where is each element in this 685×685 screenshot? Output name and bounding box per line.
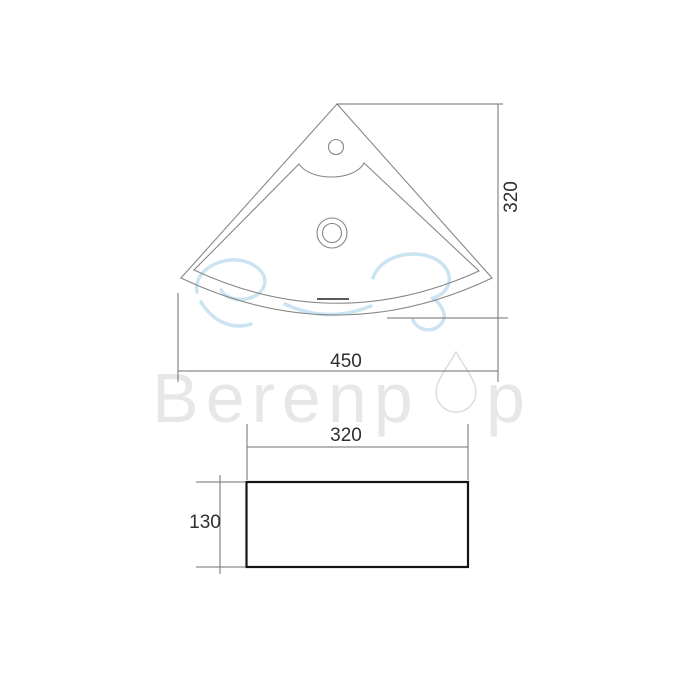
drain-hole-outer — [317, 218, 347, 248]
dimension-drawing: 320 450 320 130 — [0, 0, 685, 685]
drain-hole-inner — [323, 224, 342, 243]
side-view-body — [247, 482, 469, 567]
tap-hole — [329, 140, 344, 155]
top-depth-label: 320 — [501, 181, 522, 213]
top-width-label: 450 — [330, 351, 362, 372]
top-view-group — [181, 104, 492, 315]
technical-drawing-canvas: Berenp p 320 — [0, 0, 685, 685]
basin-inner-rim — [194, 163, 479, 303]
side-view-group — [247, 482, 469, 567]
side-height-label: 130 — [189, 512, 221, 533]
side-width-label: 320 — [330, 425, 362, 446]
top-view-dimensions: 320 450 — [178, 104, 522, 382]
